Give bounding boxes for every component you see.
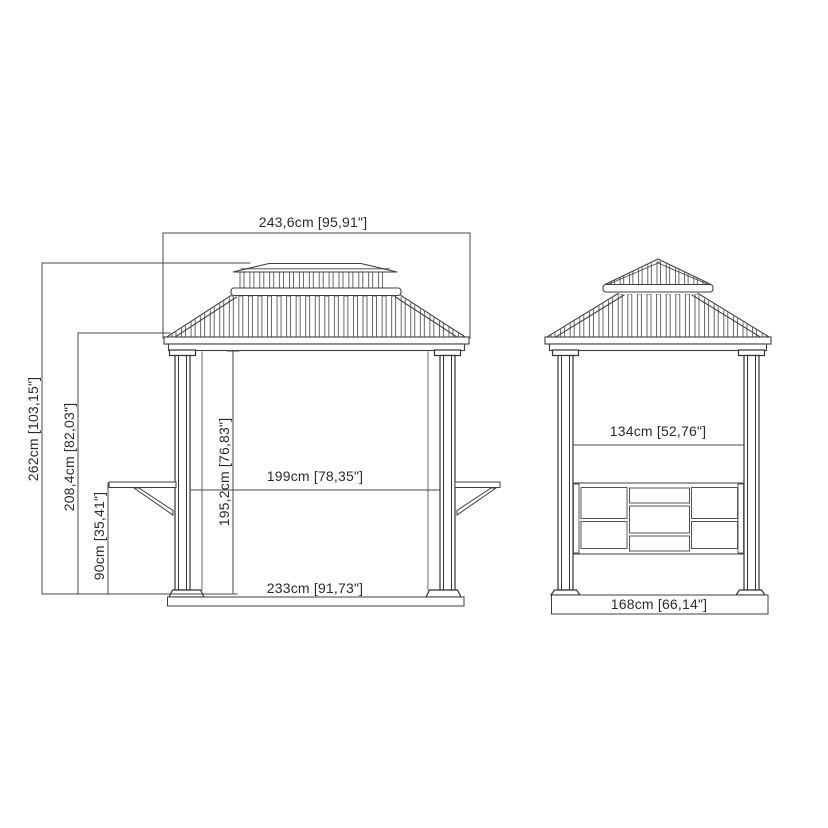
dim-inner-width-label: 199cm [78,35"] (267, 468, 364, 484)
dim-base-depth-label: 168cm [66,14"] (611, 596, 708, 612)
side-posts (551, 350, 765, 595)
dim-inner-depth-label: 134cm [52,76"] (610, 423, 707, 439)
front-roof-slats (172, 272, 463, 337)
gazebo-dimension-diagram: 243,6cm [95,91"] 262cm [103,15"] 208,4cm… (0, 0, 828, 828)
dim-roof-width-label: 243,6cm [95,91"] (259, 214, 368, 230)
grill-cabinet (573, 483, 744, 554)
dim-shelf-height-label: 90cm [35,41"] (91, 492, 107, 581)
dim-base-width-label: 233cm [91,73"] (267, 580, 364, 596)
dim-clear-height-label: 195,2cm [76,83"] (216, 418, 232, 527)
dim-frame-height-label: 208,4cm [82,03"] (61, 403, 77, 512)
dim-total-height-label: 262cm [103,15"] (25, 377, 41, 481)
side-roof-slats (551, 262, 766, 337)
technical-drawing (0, 0, 828, 828)
